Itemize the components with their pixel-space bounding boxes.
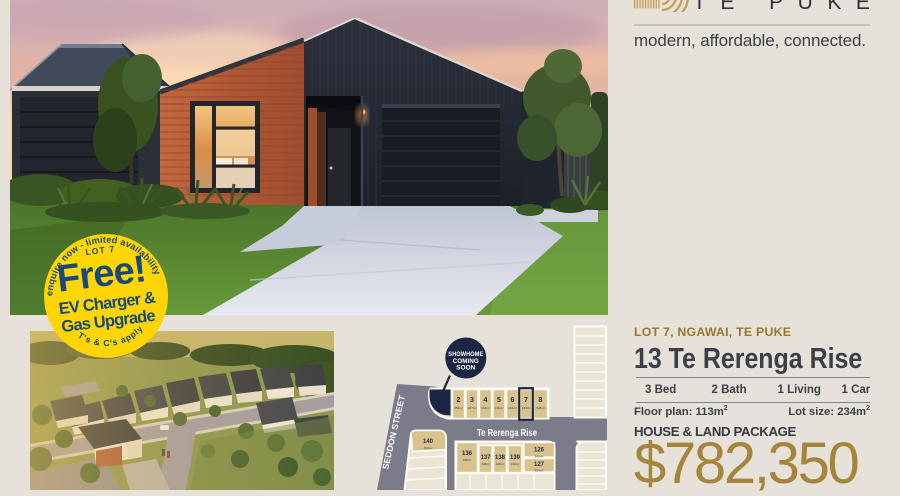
svg-text:140: 140 [423, 439, 434, 445]
svg-text:240m²: 240m² [535, 455, 544, 459]
svg-text:360m²: 360m² [424, 446, 433, 450]
svg-text:8: 8 [539, 397, 543, 404]
svg-text:248m²: 248m² [496, 462, 505, 466]
svg-text:4: 4 [484, 397, 488, 404]
svg-text:SHOWHOME: SHOWHOME [448, 352, 483, 358]
svg-text:248m²: 248m² [481, 462, 490, 466]
svg-text:137: 137 [480, 455, 491, 461]
svg-text:7: 7 [524, 397, 528, 404]
svg-text:139: 139 [510, 455, 521, 461]
svg-text:136: 136 [462, 451, 473, 457]
svg-text:204m²: 204m² [535, 469, 544, 473]
svg-text:5: 5 [497, 397, 501, 404]
svg-text:SOON: SOON [456, 365, 475, 371]
svg-text:Te Rerenga Rise: Te Rerenga Rise [477, 428, 537, 439]
svg-text:256m²: 256m² [454, 406, 463, 410]
svg-text:216m²: 216m² [495, 406, 504, 410]
svg-text:328m²: 328m² [536, 406, 545, 410]
svg-text:246m²: 246m² [511, 462, 520, 466]
svg-text:288m²: 288m² [463, 458, 472, 462]
svg-text:3: 3 [470, 397, 474, 404]
svg-text:234m²: 234m² [522, 406, 531, 410]
svg-text:138: 138 [495, 455, 506, 461]
svg-text:216m²: 216m² [481, 406, 490, 410]
svg-text:216m²: 216m² [508, 406, 517, 410]
svg-text:2: 2 [457, 397, 461, 404]
svg-text:127: 127 [534, 462, 545, 468]
svg-text:6: 6 [511, 397, 515, 404]
svg-text:COMING: COMING [453, 359, 479, 365]
svg-text:257m²: 257m² [468, 406, 477, 410]
svg-text:126: 126 [534, 448, 545, 454]
